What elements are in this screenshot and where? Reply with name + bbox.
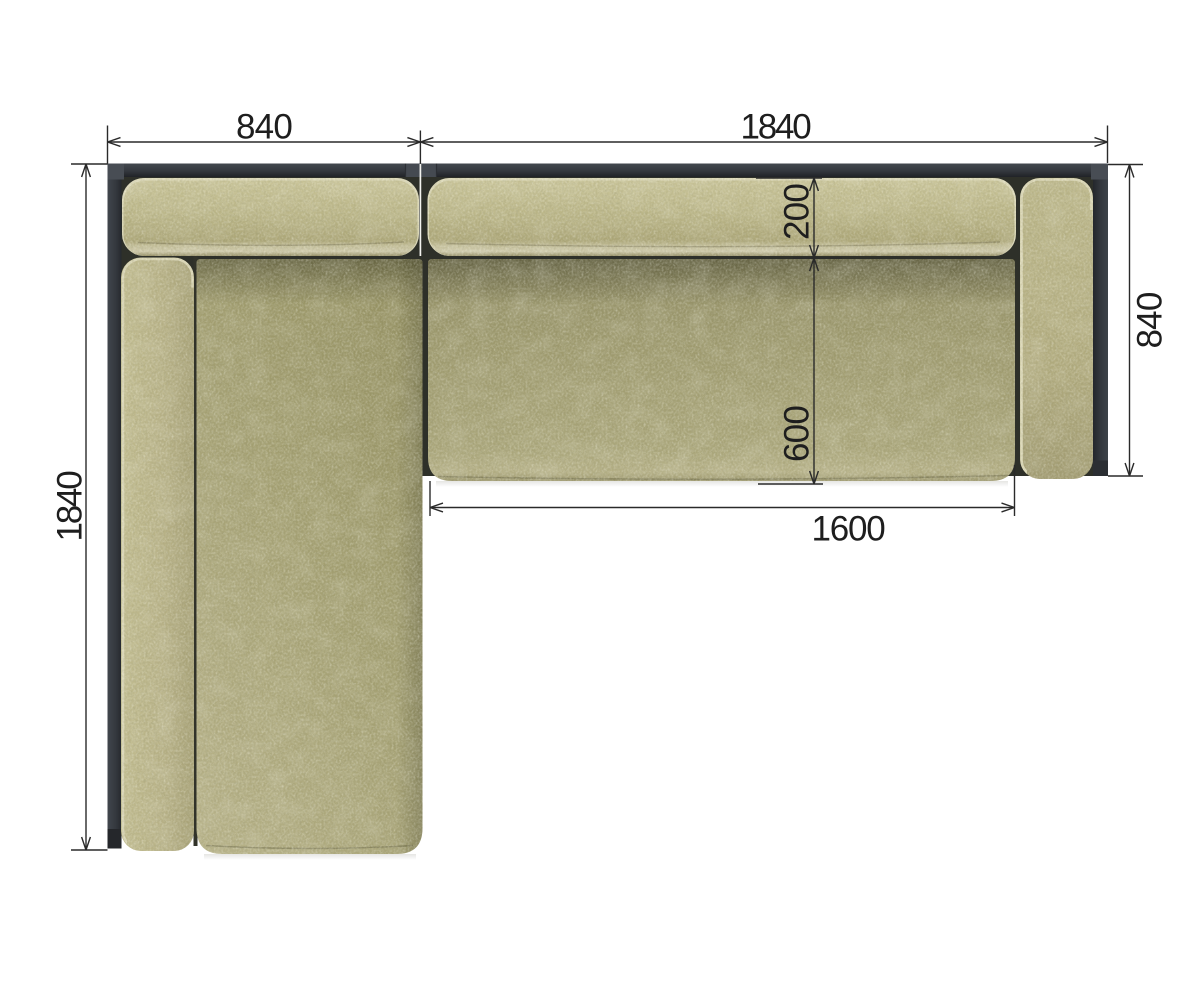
svg-text:1840: 1840 xyxy=(740,108,811,147)
svg-text:1600: 1600 xyxy=(811,510,885,549)
svg-text:840: 840 xyxy=(1131,292,1170,348)
svg-text:600: 600 xyxy=(778,406,817,462)
svg-text:840: 840 xyxy=(236,108,292,147)
svg-text:200: 200 xyxy=(778,184,817,240)
svg-text:1840: 1840 xyxy=(51,471,90,542)
